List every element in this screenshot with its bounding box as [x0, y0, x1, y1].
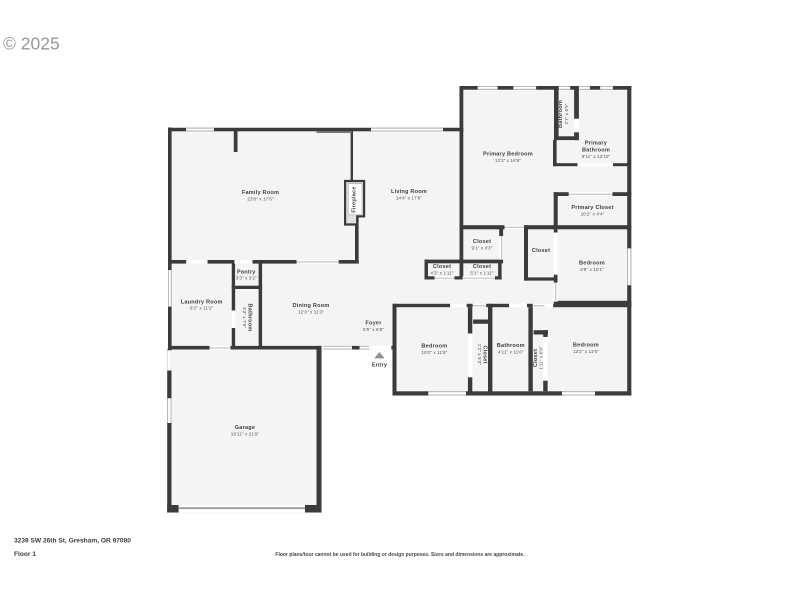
svg-text:10'2" x 4'4": 10'2" x 4'4" [581, 211, 605, 216]
svg-text:Fireplace: Fireplace [352, 186, 358, 212]
svg-text:Floor plans/tour cannot be use: Floor plans/tour cannot be used for buil… [275, 552, 525, 558]
svg-text:Bedroom: Bedroom [573, 342, 599, 348]
svg-text:3239 SW 26th St, Gresham, OR 9: 3239 SW 26th St, Gresham, OR 97080 [14, 537, 131, 544]
svg-text:Closet: Closet [433, 264, 451, 270]
svg-text:12'3" x 18'6": 12'3" x 18'6" [495, 158, 522, 163]
svg-text:4'11" x 11'6": 4'11" x 11'6" [498, 350, 524, 355]
svg-text:Garage: Garage [235, 425, 255, 431]
svg-text:4'3" x 1'11": 4'3" x 1'11" [430, 271, 454, 276]
svg-text:Closet: Closet [473, 264, 491, 270]
svg-text:Closet: Closet [532, 248, 550, 254]
svg-text:Foyer: Foyer [365, 321, 382, 327]
svg-text:Bathroom: Bathroom [582, 147, 610, 153]
svg-text:Primary Closet: Primary Closet [571, 205, 613, 211]
svg-text:9'9" x 10'1": 9'9" x 10'1" [580, 267, 604, 272]
svg-text:3'3" x 3'2": 3'3" x 3'2" [236, 276, 257, 281]
svg-text:Bathroom: Bathroom [497, 343, 525, 349]
svg-text:Primary Bedroom: Primary Bedroom [483, 151, 533, 157]
svg-text:13'2" x 11'6": 13'2" x 11'6" [573, 349, 599, 354]
svg-text:© 2025: © 2025 [3, 34, 60, 54]
svg-text:Living Room: Living Room [391, 189, 427, 195]
svg-text:Family Room: Family Room [242, 190, 279, 196]
svg-text:Pantry: Pantry [237, 269, 256, 275]
svg-text:Bedroom: Bedroom [579, 260, 605, 266]
svg-text:8'2" x 11'2": 8'2" x 11'2" [190, 306, 214, 311]
svg-text:9'11" x 13'10": 9'11" x 13'10" [582, 154, 611, 159]
svg-text:Laundry Room: Laundry Room [181, 299, 223, 305]
svg-text:5'1" x 1'11": 5'1" x 1'11" [470, 271, 494, 276]
svg-text:1'11" x 6'9": 1'11" x 6'9" [539, 346, 544, 370]
svg-text:10'0" x 11'6": 10'0" x 11'6" [421, 350, 447, 355]
svg-text:5'5" x 6'8": 5'5" x 6'8" [363, 327, 384, 332]
svg-text:Floor 1: Floor 1 [14, 551, 36, 558]
svg-text:19'11" x 21'9": 19'11" x 21'9" [231, 431, 260, 436]
svg-text:14'4" x 17'6": 14'4" x 17'6" [396, 196, 423, 201]
svg-text:3'3" x 7'9": 3'3" x 7'9" [242, 307, 247, 328]
svg-text:2'2" x 9'3": 2'2" x 9'3" [477, 344, 482, 365]
svg-text:12'3" x 11'3": 12'3" x 11'3" [298, 310, 324, 315]
svg-text:Entry: Entry [372, 363, 388, 369]
svg-text:Closet: Closet [473, 239, 491, 245]
svg-text:Primary: Primary [585, 140, 608, 146]
svg-text:23'0" x 17'6": 23'0" x 17'6" [247, 197, 274, 202]
svg-text:Dining Room: Dining Room [293, 303, 330, 309]
svg-text:2'7" x 6'9": 2'7" x 6'9" [564, 103, 569, 124]
svg-text:Bedroom: Bedroom [421, 344, 447, 350]
svg-text:9'1" x 4'3": 9'1" x 4'3" [472, 246, 493, 251]
